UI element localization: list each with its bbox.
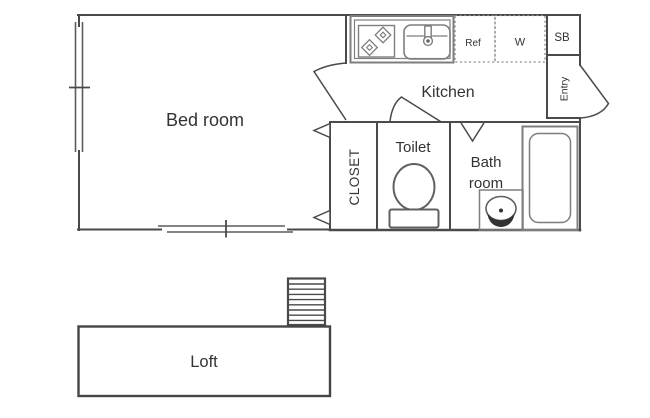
entry-label: Entry xyxy=(559,76,571,101)
ladder-icon xyxy=(288,279,325,326)
loft-structure xyxy=(79,279,331,397)
window-icon-bottom-wall xyxy=(158,220,293,238)
floor-plan-canvas: Bed room Kitchen Toilet Bath room CLOSET… xyxy=(0,0,650,418)
washbasin-icon xyxy=(480,190,524,230)
refrigerator-label: Ref xyxy=(465,38,481,49)
door-swing-icon-bedroom xyxy=(314,63,346,120)
counter-outline xyxy=(351,16,454,63)
shoebox-label: SB xyxy=(554,32,570,44)
bedroom-label: Bed room xyxy=(166,110,244,130)
bathroom-label-line2: room xyxy=(469,175,503,192)
toilet-label: Toilet xyxy=(395,139,431,156)
door-swing-icon-entry xyxy=(580,65,609,118)
faucet-icon xyxy=(424,26,433,45)
stove-icon xyxy=(359,26,395,58)
closet-door-triangle-top xyxy=(314,124,330,138)
toilet-icon xyxy=(390,164,439,228)
kitchen-label: Kitchen xyxy=(421,84,474,101)
loft-label: Loft xyxy=(190,353,218,371)
closet-door-triangle-bottom xyxy=(314,211,330,225)
closet-label: CLOSET xyxy=(347,148,362,205)
bathtub-icon xyxy=(523,127,578,231)
folding-door-icon-bathroom xyxy=(461,123,484,141)
washer-label: W xyxy=(515,37,526,49)
bathroom-label-line1: Bath xyxy=(471,154,502,171)
kitchen-counter xyxy=(351,16,454,63)
window-icon-left-wall xyxy=(69,22,90,152)
floor-plan-drawing: Bed room Kitchen Toilet Bath room CLOSET… xyxy=(0,0,650,418)
